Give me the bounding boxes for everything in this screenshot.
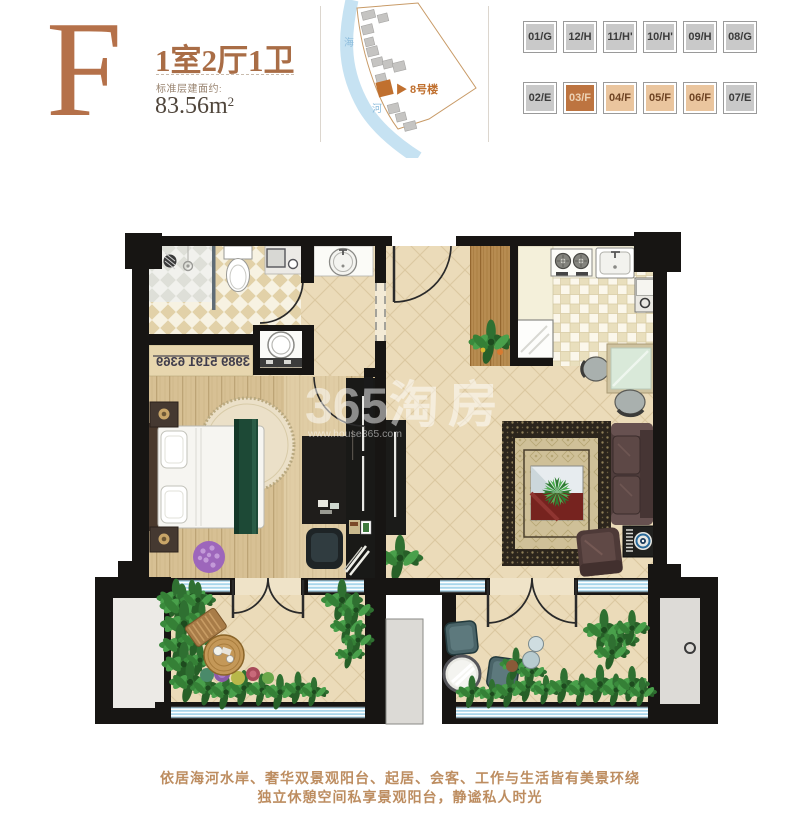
svg-text:海: 海 <box>344 36 354 49</box>
svg-text:河: 河 <box>372 103 382 115</box>
svg-text:www.house365.com: www.house365.com <box>307 428 402 440</box>
svg-text:▶ 8号楼: ▶ 8号楼 <box>396 82 438 96</box>
svg-text:365: 365 <box>305 378 388 434</box>
svg-text:淘房: 淘房 <box>389 377 507 433</box>
